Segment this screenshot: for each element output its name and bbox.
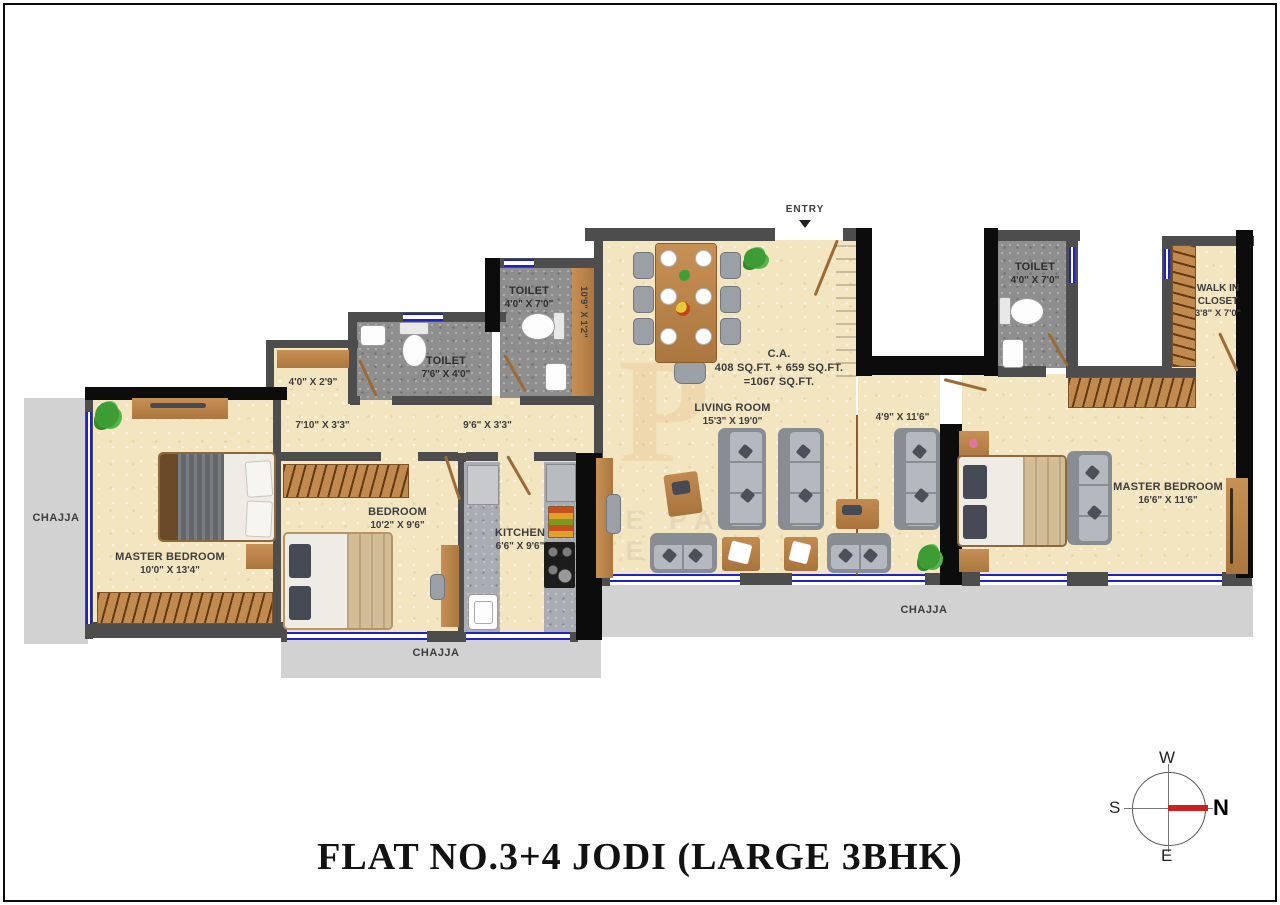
room-name: MASTER BEDROOM (1093, 481, 1243, 495)
wall (348, 312, 357, 404)
room-name: TOILET (494, 285, 564, 299)
room-name: TOILET (998, 261, 1072, 275)
room-dim: 15'3" X 19'0" (660, 416, 805, 429)
table-card (789, 541, 811, 563)
sofa-two-seater (827, 533, 891, 573)
bed-pillow (245, 500, 273, 537)
dining-plate (695, 288, 712, 305)
dining-plate (660, 328, 677, 345)
tv-unit (150, 403, 206, 408)
toilet-right-label: TOILET 4'0" X 7'0" (998, 261, 1072, 287)
passage-nook-label: 4'0" X 2'9" (273, 377, 353, 390)
kitchen-label: KITCHEN 6'6" X 9'6" (475, 527, 565, 553)
window (610, 574, 740, 582)
wall (520, 396, 602, 405)
wall (925, 573, 940, 585)
passage-foyer-label: 4'9" X 11'6" (855, 412, 950, 425)
sofa-three-seater (894, 428, 940, 530)
desk-chair (606, 494, 621, 534)
nook-cabinet (277, 350, 349, 368)
window (287, 632, 427, 640)
window (504, 259, 534, 267)
wall-black (856, 356, 998, 375)
wall (266, 340, 358, 348)
dresser (132, 398, 228, 419)
duct-label: 10'9" X 1'2" (577, 262, 589, 362)
room-dim: 3'8" X 7'0" (1190, 308, 1246, 320)
entry-label: ENTRY (775, 204, 835, 217)
bedroom-label: BEDROOM 10'2" X 9'6" (345, 506, 450, 532)
kitchen-platform (467, 465, 499, 505)
bed-blanket-tan (347, 534, 393, 628)
dining-plate (695, 328, 712, 345)
compass-west: W (1159, 748, 1175, 768)
living-room-label: LIVING ROOM 15'3" X 19'0" (660, 402, 805, 428)
passage-corridor-right-label: 9'6" X 3'3" (440, 420, 535, 433)
dining-chair (720, 318, 741, 345)
wall (350, 396, 360, 405)
wash-basin (360, 325, 386, 346)
nightstand (959, 549, 989, 572)
dining-plate (695, 250, 712, 267)
window (980, 574, 1067, 582)
kitchen-sink (468, 594, 498, 630)
table-card (728, 541, 752, 564)
bed-pillow-dark (289, 544, 311, 578)
sofa-three-seater (778, 428, 824, 530)
room-dim: 7'6" X 4'0" (405, 369, 487, 382)
plan-title: FLAT NO.3+4 JODI (LARGE 3BHK) (0, 835, 1280, 879)
wall (534, 452, 576, 461)
wardrobe (97, 592, 273, 624)
wall (585, 228, 775, 241)
wall (392, 396, 492, 405)
flower-vase (969, 439, 978, 448)
bed-pillow (245, 460, 273, 498)
dresser (959, 431, 989, 458)
room-dim: 16'6" X 11'6" (1093, 495, 1243, 508)
sofa-three-seater (718, 428, 766, 530)
tray (842, 505, 862, 515)
dining-chair (633, 286, 654, 313)
room-dim: 6'6" X 9'6" (475, 541, 565, 554)
bedroom-bed (283, 532, 393, 630)
walk-in-closet-label: WALK IN CLOSET 3'8" X 7'0" (1190, 283, 1246, 320)
bed-pillow-dark (289, 586, 311, 620)
dining-chair (720, 286, 741, 313)
room-name: KITCHEN (475, 527, 565, 541)
room-name: BEDROOM (345, 506, 450, 520)
room-name: LIVING ROOM (660, 402, 805, 416)
area-note-line2: 408 SQ.FT. + 659 SQ.FT. (700, 362, 858, 376)
desk-chair (430, 574, 445, 600)
dining-chair (633, 252, 654, 279)
wall (1078, 366, 1164, 377)
area-note-line3: =1067 SQ.FT. (700, 376, 858, 390)
window (1108, 574, 1222, 582)
center-table (836, 499, 879, 529)
master-left-label: MASTER BEDROOM 10'0" X 13'4" (95, 551, 245, 577)
wall (418, 452, 458, 461)
window (1164, 249, 1170, 279)
area-note: C.A. 408 SQ.FT. + 659 SQ.FT. =1067 SQ.FT… (700, 348, 858, 389)
chajja-bottom-label: CHAJJA (400, 647, 472, 661)
dining-chair (720, 252, 741, 279)
bed-footboard (160, 454, 178, 540)
sofa-two-seater (650, 533, 717, 573)
wall (740, 573, 792, 585)
toilet-bowl (521, 313, 555, 340)
passage-corridor-left-label: 7'10" X 3'3" (275, 420, 370, 433)
area-note-line1: C.A. (700, 348, 858, 362)
refrigerator (546, 464, 576, 502)
chajja-left-label: CHAJJA (22, 512, 90, 526)
dining-plate (660, 250, 677, 267)
wall-black (984, 228, 998, 376)
wall (1067, 572, 1108, 586)
room-dim: 4'0" X 7'0" (998, 275, 1072, 288)
master-right-bed (957, 455, 1067, 547)
sink-basin (474, 601, 493, 624)
window (792, 574, 925, 582)
dining-plate (660, 288, 677, 305)
wall-black (856, 228, 872, 376)
bed-pillow-dark (963, 505, 987, 539)
laptop (671, 480, 691, 495)
wash-basin (1002, 339, 1024, 368)
compass-south: S (1109, 798, 1120, 818)
fruit-bowl (676, 302, 690, 316)
room-dim: 10'2" X 9'6" (345, 520, 450, 533)
dining-chair (633, 318, 654, 345)
wardrobe (283, 464, 409, 498)
bed-pillow-dark (963, 465, 987, 499)
master-left-bed (158, 452, 276, 542)
toilet-mid-label: TOILET 4'0" X 7'0" (494, 285, 564, 311)
nightstand (246, 544, 273, 569)
entry-arrow-icon (799, 220, 811, 228)
compass-north: N (1213, 795, 1229, 821)
window (466, 632, 570, 640)
master-right-label: MASTER BEDROOM 16'6" X 11'6" (1093, 481, 1243, 507)
chajja-right-label: CHAJJA (888, 604, 960, 618)
coffee-table (722, 537, 760, 571)
wall (427, 631, 466, 642)
room-dim: 10'0" X 13'4" (95, 565, 245, 578)
wall (85, 622, 287, 638)
side-table (663, 471, 703, 517)
wardrobe (1068, 377, 1196, 408)
room-name: WALK IN CLOSET (1190, 283, 1246, 308)
room-name: MASTER BEDROOM (95, 551, 245, 565)
wall (594, 232, 603, 460)
toilet-bowl (1010, 298, 1044, 325)
compass-needle (1168, 805, 1208, 811)
bed-blanket-tan (1023, 457, 1067, 545)
floor-plan-page: P LE PA TELIE (0, 0, 1280, 905)
window (403, 313, 443, 321)
bed-blanket (178, 454, 224, 540)
wall (962, 572, 980, 586)
wall (466, 452, 498, 461)
room-name: TOILET (405, 355, 487, 369)
wall (281, 452, 381, 461)
toilet-left-label: TOILET 7'6" X 4'0" (405, 355, 487, 381)
wash-basin (545, 363, 567, 391)
coffee-table (784, 537, 818, 571)
room-dim: 4'0" X 7'0" (494, 299, 564, 312)
